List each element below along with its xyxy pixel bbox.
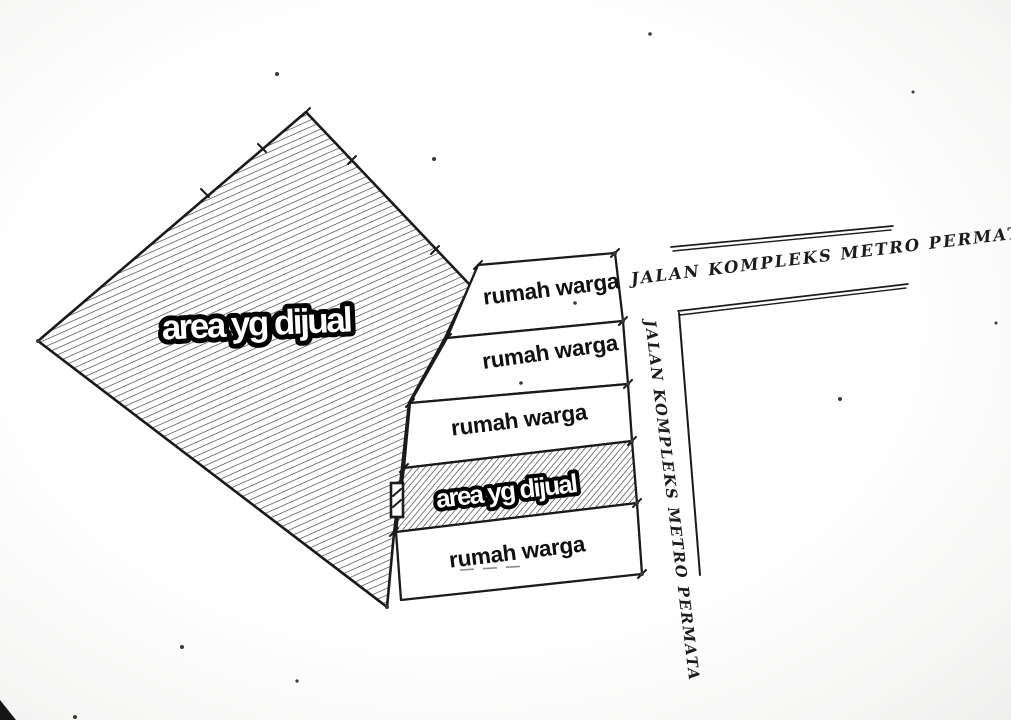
- label-area-dijual-large: area yg dijual: [161, 300, 352, 347]
- scan-corner-shadow: [0, 700, 16, 720]
- site-plan-drawing: area yg dijual area yg dijual rumah warg…: [0, 0, 1011, 720]
- site-plan-sketch-page: area yg dijual area yg dijual rumah warg…: [0, 0, 1011, 720]
- label-road-top: JALAN KOMPLEKS METRO PERMATA: [627, 221, 1011, 288]
- gate-symbol: [391, 483, 403, 517]
